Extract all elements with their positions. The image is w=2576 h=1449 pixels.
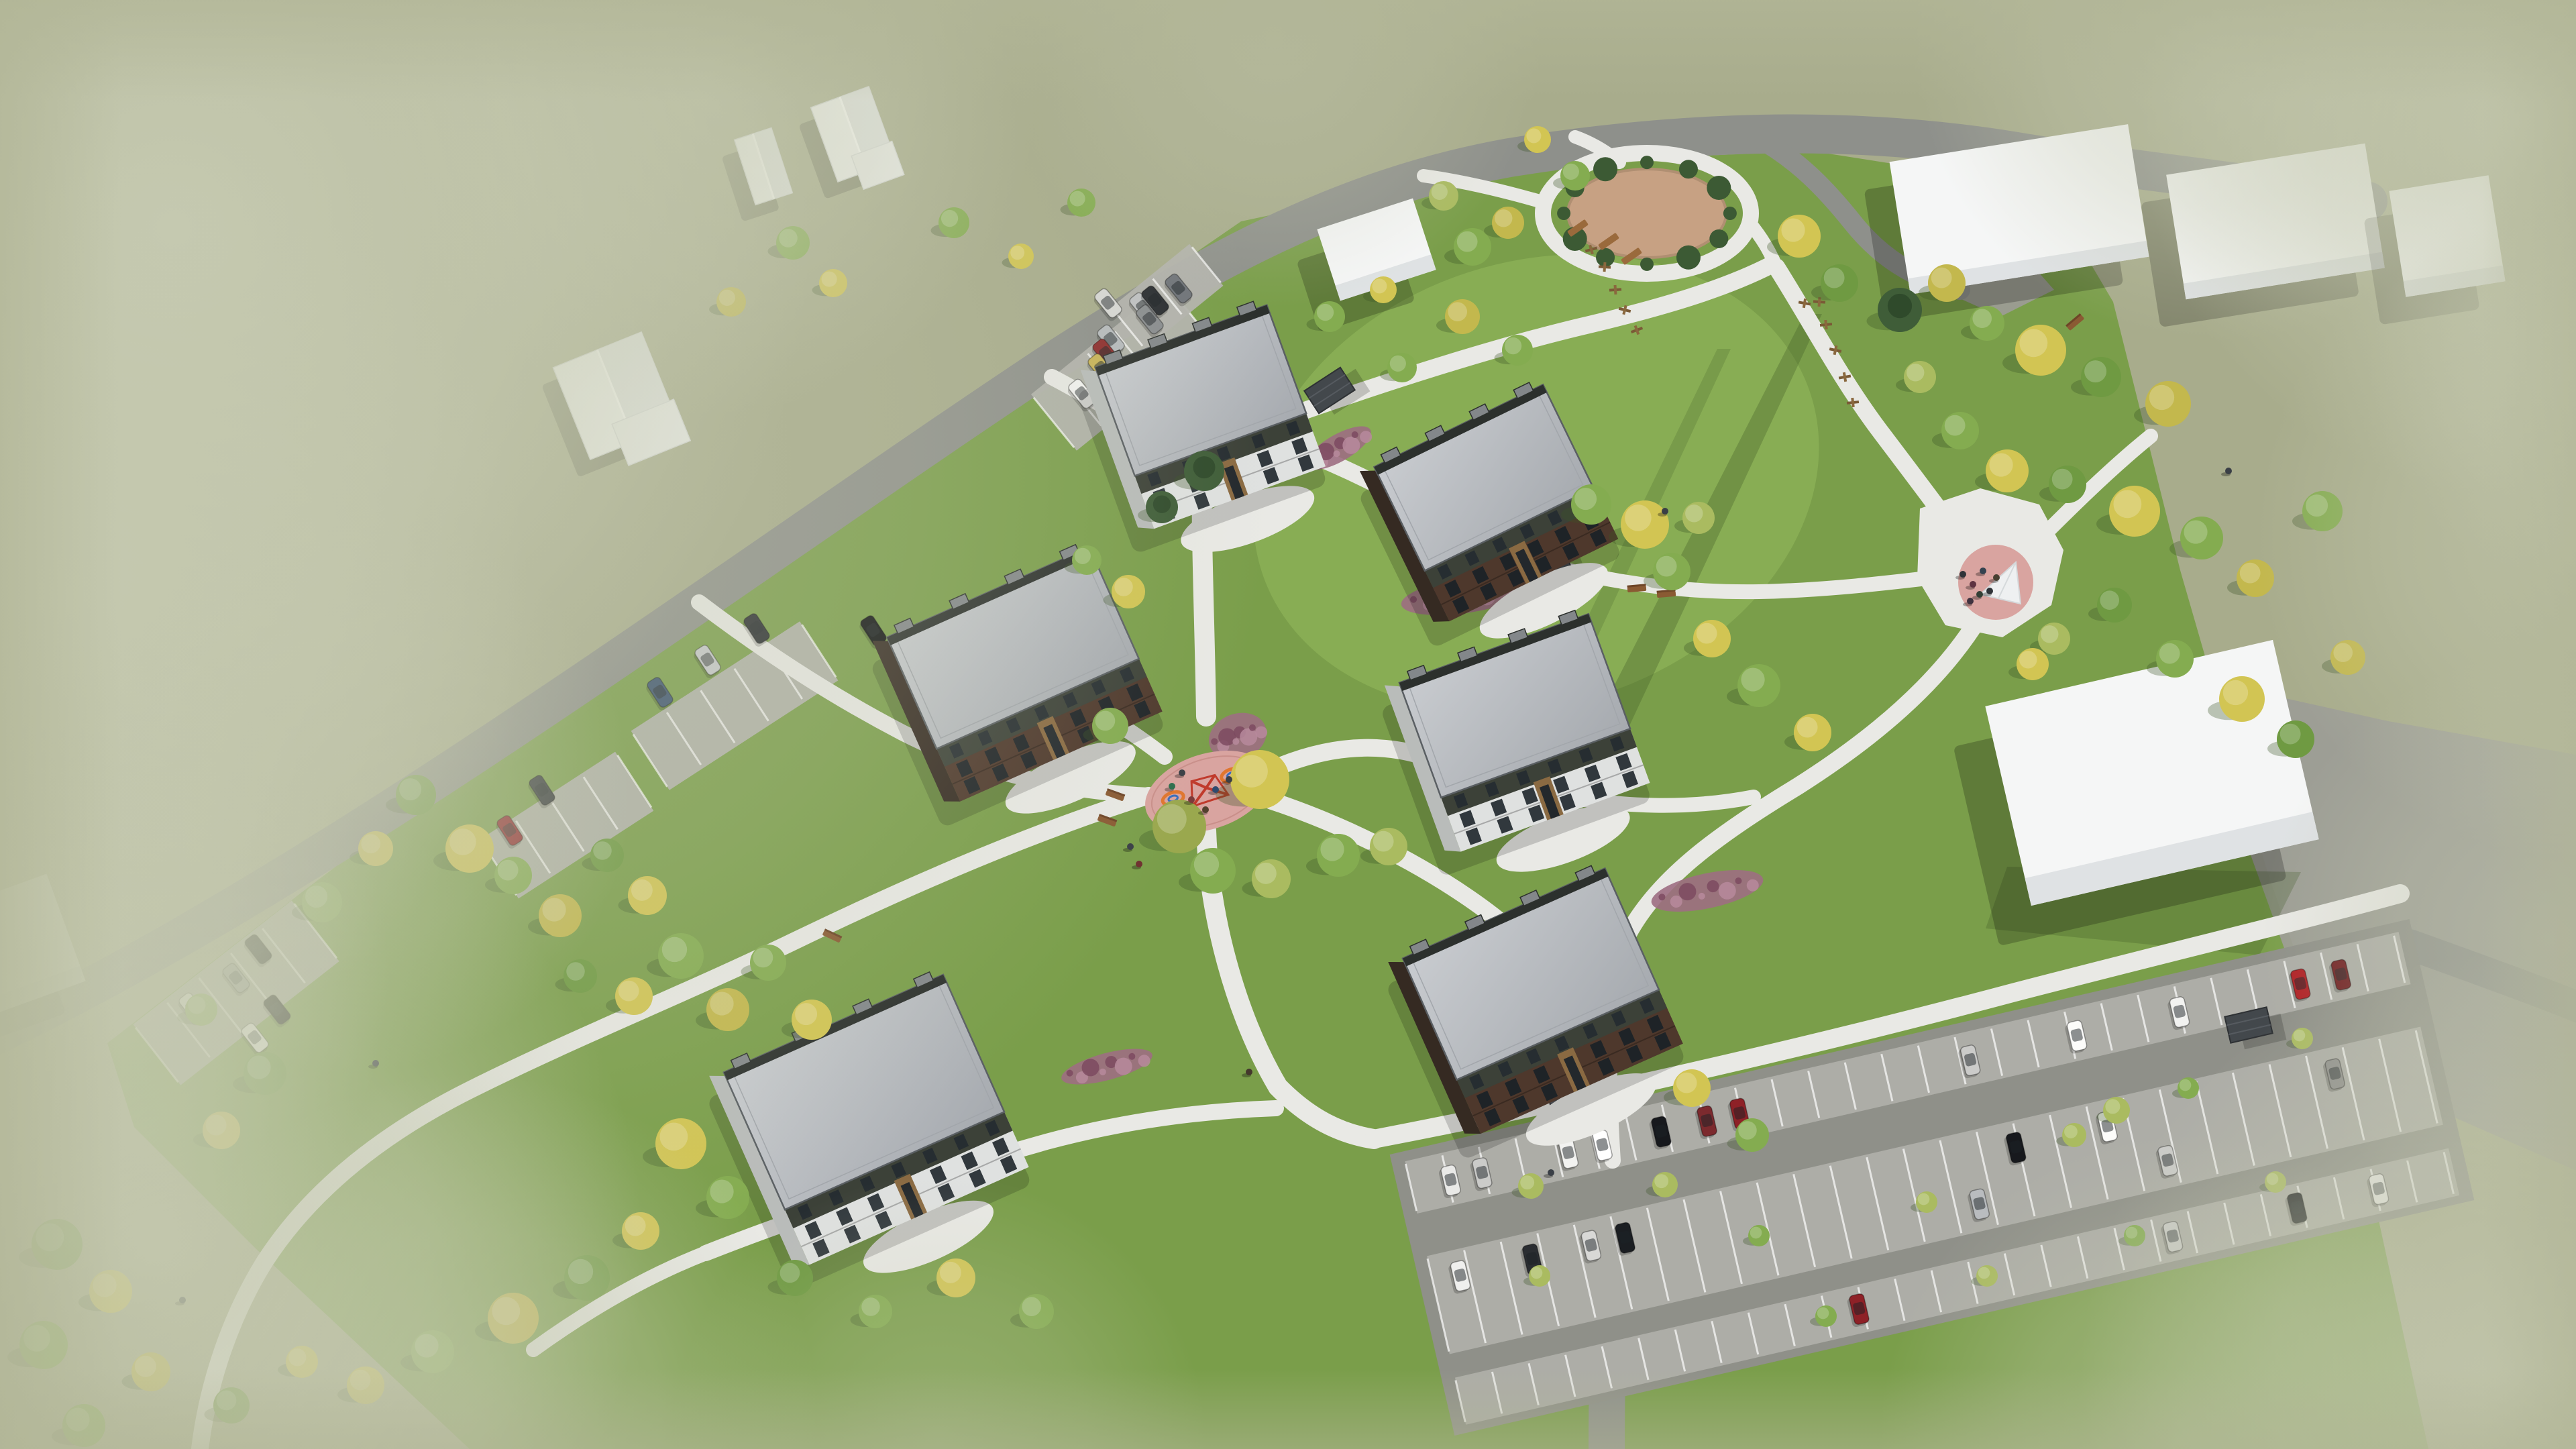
tree-highlight [2149,385,2174,410]
tree-highlight [1390,356,1406,372]
tree-highlight [2019,651,2037,668]
tree-highlight [1685,504,1703,522]
edge-haze-right [2482,0,2576,1449]
tree-highlight [1781,218,1805,241]
shrub [1707,176,1731,200]
shrub [1679,160,1698,178]
tree-highlight [1457,231,1478,252]
person [1246,1069,1252,1075]
person [1226,776,1232,783]
tree-highlight [1194,852,1219,877]
tree-highlight [1797,717,1818,738]
shrub [1676,246,1701,270]
person [2225,468,2232,474]
tree-highlight [2105,1099,2120,1114]
person [1960,571,1966,578]
tree-highlight [1972,309,1992,328]
person [1212,786,1219,793]
tree-highlight [1505,337,1521,354]
tree-highlight [1495,209,1512,227]
tree-highlight [1574,488,1597,510]
person [1980,568,1986,574]
tree-highlight [2159,643,2180,664]
tree-highlight [1918,1193,1930,1205]
shrub [1640,258,1654,271]
person [1976,591,1983,598]
shrub [1709,229,1728,248]
tree-highlight [2113,490,2141,518]
edge-haze-top [0,0,2576,101]
tree-highlight [2084,360,2106,382]
tree-highlight [1656,556,1677,577]
architectural-rendering-stage [0,0,2576,1449]
site-plan-rendering [0,0,2576,1449]
person [1993,574,2000,581]
tree-highlight [2019,329,2047,357]
tree-highlight [1448,302,1467,321]
tree-highlight [1520,1175,1534,1189]
tree-highlight [1676,1073,1697,1093]
person [1548,1169,1554,1176]
tree-highlight [1824,268,1845,288]
tree-highlight [1741,667,1764,691]
tree-highlight [1931,268,1952,288]
tree-highlight [2223,680,2248,705]
tree-highlight [1750,1227,1762,1239]
tree-highlight [1625,504,1652,531]
tree-highlight [1317,304,1334,321]
edge-haze-bottom [0,1368,2576,1449]
shrub [1593,157,1617,181]
tree-highlight [1907,364,1924,381]
tree-highlight [1526,128,1541,143]
gravel-garden-circle [1568,169,1726,258]
shrub [1640,156,1654,169]
tree-highlight [1373,831,1394,852]
tree-highlight [1817,1307,1829,1320]
tree-highlight [1945,415,1966,436]
tree-highlight [1563,164,1579,180]
tree-highlight [2041,625,2058,643]
tree-highlight [1255,863,1277,884]
shrub [1723,207,1737,220]
tree-highlight [2064,1125,2078,1138]
tree-highlight [1320,837,1344,861]
tree-highlight [2100,590,2119,610]
tree-highlight [2180,1079,2192,1091]
tree-highlight [1654,1174,1668,1188]
tree-highlight [2052,469,2073,490]
person [1202,806,1209,813]
tree-highlight [1531,1267,1543,1279]
tree-highlight [1738,1121,1757,1140]
person [1662,508,1668,515]
edge-haze-left [0,0,121,1449]
tree-highlight [1697,623,1717,644]
person [1970,581,1976,588]
person [1967,598,1974,604]
person [1986,588,1993,594]
tree-highlight [1235,755,1267,787]
shrub [1557,207,1570,220]
tree-highlight [2184,520,2207,543]
conifer-crown [1888,294,1912,318]
tree-highlight [1989,453,2012,476]
tree-highlight [2280,724,2301,745]
